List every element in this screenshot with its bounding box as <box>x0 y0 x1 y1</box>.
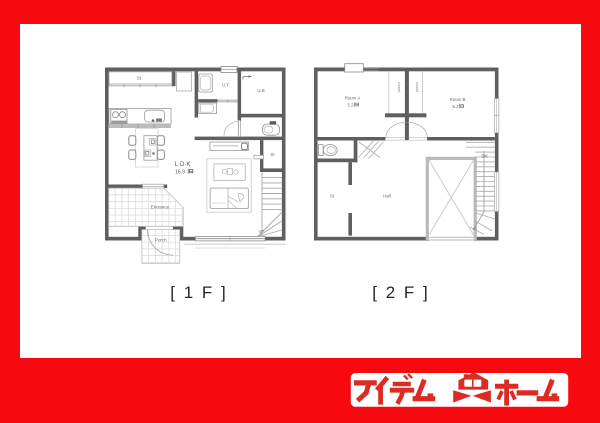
svg-text:U.T: U.T <box>222 83 229 88</box>
svg-text:Hall: Hall <box>383 194 391 199</box>
svg-text:Porch: Porch <box>155 238 167 243</box>
svg-text:5.2: 5.2 <box>452 104 459 109</box>
svg-text:U.B: U.B <box>257 88 264 93</box>
svg-text:DN: DN <box>481 154 487 159</box>
svg-text:Entrance: Entrance <box>151 205 170 210</box>
svg-text:[ 2 F ]: [ 2 F ] <box>372 283 429 302</box>
svg-text:Room A: Room A <box>345 96 361 101</box>
svg-text:L·D·K: L·D·K <box>175 162 191 168</box>
svg-text:closet: closet <box>397 82 401 93</box>
svg-text:[ 1 F ]: [ 1 F ] <box>170 283 227 302</box>
svg-text:16.9: 16.9 <box>175 170 185 176</box>
svg-text:Room B: Room B <box>450 97 466 102</box>
svg-text:UP: UP <box>259 229 265 234</box>
svg-text:5.2: 5.2 <box>347 103 354 108</box>
svg-text:closet: closet <box>415 82 419 93</box>
